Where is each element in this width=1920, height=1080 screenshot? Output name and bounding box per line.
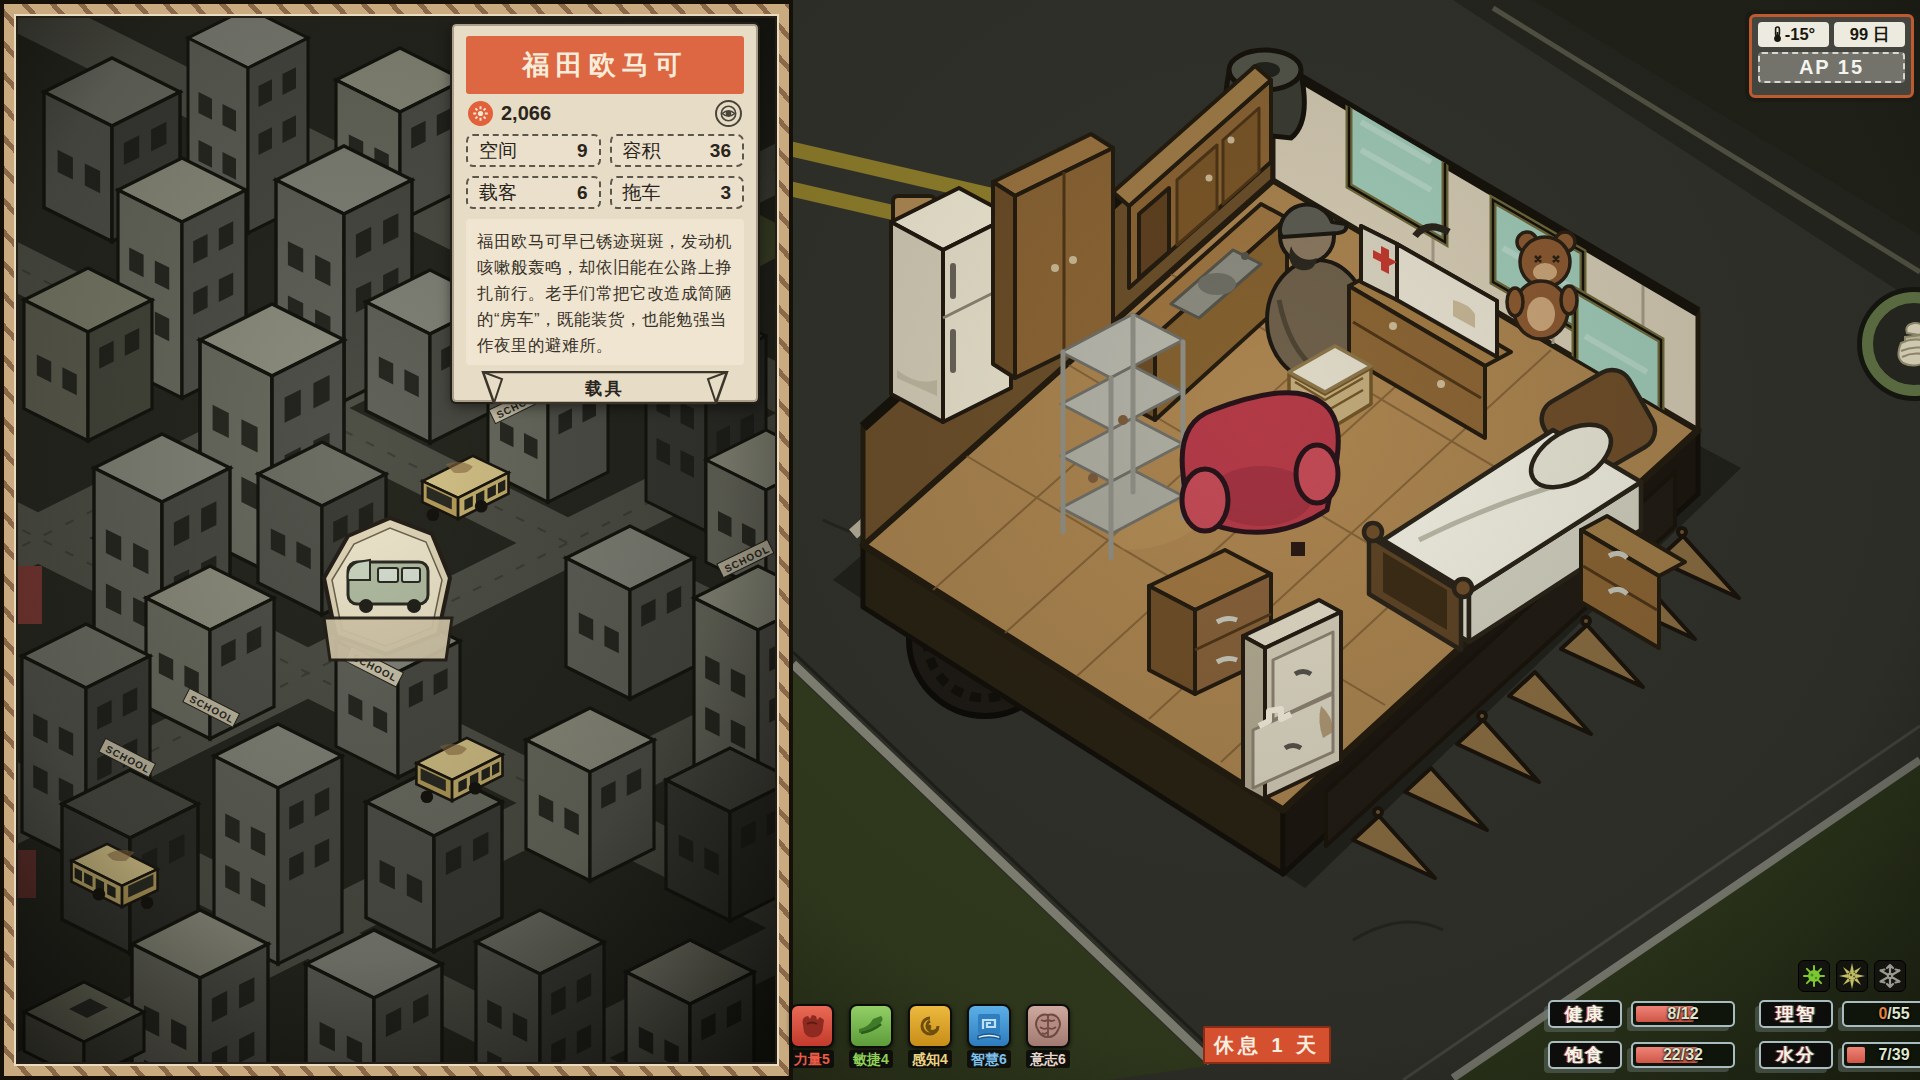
vehicle-info-card: 福田欧马可 2,066 空间9 容积36 载客6 拖车3 福田欧马可早已锈迹斑斑… xyxy=(452,24,758,402)
loot-bag-icon xyxy=(1893,321,1920,367)
attribute-agility[interactable]: 敏捷4 xyxy=(848,1004,894,1068)
game-screen: SCHOOL SCHOOL SCHOOL SCHOOL SCHOOL xyxy=(0,0,1920,1080)
status-panel: -15° 99 日 AP 15 xyxy=(1745,10,1918,102)
eye-icon[interactable] xyxy=(715,100,742,127)
vehicle-scene-panel xyxy=(793,0,1920,1080)
vehicle-stats: 空间9 容积36 载客6 拖车3 xyxy=(466,134,744,209)
vehicle-title: 福田欧马可 xyxy=(466,36,744,94)
vital-sanity: 理智 0/55 xyxy=(1759,1000,1920,1028)
vital-hydration: 水分 7/39 xyxy=(1759,1041,1920,1069)
vital-health: 健康 8/12 xyxy=(1548,1000,1735,1028)
brain-icon xyxy=(1026,1004,1070,1048)
scene-art xyxy=(793,0,1920,1080)
attribute-will[interactable]: 意志6 xyxy=(1025,1004,1071,1068)
stat-volume: 容积36 xyxy=(610,134,745,167)
day-pill: 99 日 xyxy=(1834,22,1905,47)
stat-space: 空间9 xyxy=(466,134,601,167)
vehicle-category-banner: 载具 xyxy=(466,371,744,405)
radiation-sun-icon xyxy=(1836,960,1868,992)
currency-value: 2,066 xyxy=(501,102,715,125)
book-icon xyxy=(967,1004,1011,1048)
stat-trailer: 拖车3 xyxy=(610,176,745,209)
supply-token-icon xyxy=(468,101,493,126)
sanity-bar: 0/55 xyxy=(1842,1001,1920,1027)
virus-icon xyxy=(1798,960,1830,992)
swirl-eye-icon xyxy=(908,1004,952,1048)
rest-button[interactable]: 休息 1 天 xyxy=(1203,1026,1331,1064)
attribute-intelligence[interactable]: 智慧6 xyxy=(966,1004,1012,1068)
thermometer-icon xyxy=(1772,26,1783,43)
boot-icon xyxy=(849,1004,893,1048)
frost-icon xyxy=(1874,960,1906,992)
fist-icon xyxy=(790,1004,834,1048)
vitals-panel: 健康 8/12 理智 0/55 饱食 22/32 水分 7/39 xyxy=(1548,1000,1920,1069)
hazard-icons xyxy=(1798,960,1906,992)
stat-passengers: 载客6 xyxy=(466,176,601,209)
temperature-pill: -15° xyxy=(1758,22,1829,47)
svg-text:载具: 载具 xyxy=(585,379,625,398)
action-points: AP 15 xyxy=(1758,52,1905,83)
health-bar: 8/12 xyxy=(1631,1001,1735,1027)
attribute-strength[interactable]: 力量5 xyxy=(789,1004,835,1068)
vehicle-description: 福田欧马可早已锈迹斑斑，发动机咳嗽般轰鸣，却依旧能在公路上挣扎前行。老手们常把它… xyxy=(466,219,744,365)
attributes-bar: 力量5 敏捷4 感知4 智慧6 意志6 xyxy=(789,1004,1071,1068)
vital-satiety: 饱食 22/32 xyxy=(1548,1041,1735,1069)
satiety-bar: 22/32 xyxy=(1631,1042,1735,1068)
attribute-perception[interactable]: 感知4 xyxy=(907,1004,953,1068)
hydration-bar: 7/39 xyxy=(1842,1042,1920,1068)
